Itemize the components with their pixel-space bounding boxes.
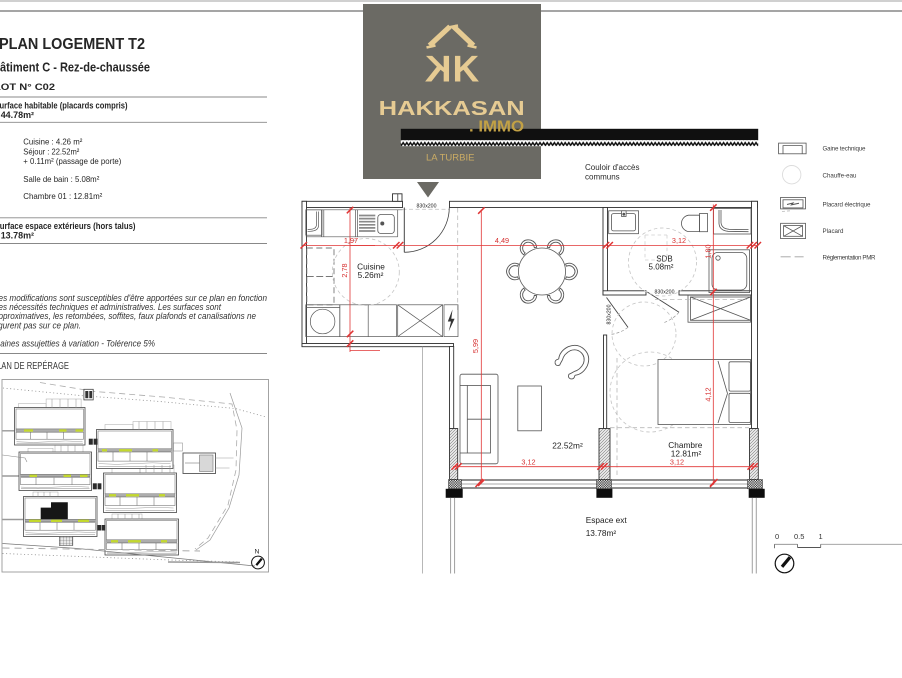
svg-text:Placard: Placard xyxy=(823,228,845,235)
svg-text:figurent pas sur ce plan.: figurent pas sur ce plan. xyxy=(0,320,81,330)
svg-text:830x200: 830x200 xyxy=(417,204,437,210)
svg-text:4,49: 4,49 xyxy=(495,236,509,245)
svg-text:1: 1 xyxy=(819,532,823,541)
svg-text:. IMMO: . IMMO xyxy=(469,119,524,136)
svg-text:Couloir d'accès: Couloir d'accès xyxy=(585,163,639,172)
svg-text:PLAN DE REPÉRAGE: PLAN DE REPÉRAGE xyxy=(0,359,69,372)
svg-text:PLAN LOGEMENT T2: PLAN LOGEMENT T2 xyxy=(0,36,145,53)
svg-text:Gaines assujetties à variation: Gaines assujetties à variation - Toléren… xyxy=(0,339,155,349)
svg-text:Gaine technique: Gaine technique xyxy=(823,146,867,153)
svg-text:LA TURBIE: LA TURBIE xyxy=(426,152,475,163)
svg-text:Cuisine : 4.26 m²: Cuisine : 4.26 m² xyxy=(23,137,82,147)
svg-text:Bâtiment C - Rez-de-chaussée: Bâtiment C - Rez-de-chaussée xyxy=(0,61,150,75)
svg-text:= 44.78m²: = 44.78m² xyxy=(0,110,34,120)
svg-text:3,12: 3,12 xyxy=(670,457,684,466)
svg-text:+ 0.11m² (passage de porte): + 0.11m² (passage de porte) xyxy=(23,156,121,166)
svg-text:13.78m²: 13.78m² xyxy=(586,528,617,538)
svg-text:Salle de bain : 5.08m²: Salle de bain : 5.08m² xyxy=(23,174,99,184)
svg-text:LOT N° C02: LOT N° C02 xyxy=(0,82,55,92)
svg-text:22.52m²: 22.52m² xyxy=(552,441,583,451)
svg-text:Chambre 01 : 12.81m²: Chambre 01 : 12.81m² xyxy=(23,191,102,201)
svg-text:2,78: 2,78 xyxy=(340,263,349,277)
svg-text:HAKKASAN: HAKKASAN xyxy=(379,97,525,120)
svg-text:Séjour : 22.52m²: Séjour : 22.52m² xyxy=(23,147,79,157)
svg-text:4,12: 4,12 xyxy=(703,387,712,401)
svg-text:3,12: 3,12 xyxy=(672,236,686,245)
svg-text:1,97: 1,97 xyxy=(344,236,358,245)
svg-text:830x200: 830x200 xyxy=(655,289,675,295)
svg-text:Surface habitable (placards co: Surface habitable (placards compris) xyxy=(0,100,128,110)
svg-text:5.26m²: 5.26m² xyxy=(358,270,384,280)
svg-text:N: N xyxy=(255,549,260,556)
svg-text:830x200: 830x200 xyxy=(607,304,613,324)
svg-text:1,80: 1,80 xyxy=(703,244,712,258)
svg-text:Espace ext: Espace ext xyxy=(586,515,628,525)
svg-text:K: K xyxy=(425,49,452,90)
svg-text:Placard électrique: Placard électrique xyxy=(823,202,872,209)
svg-text:5,99: 5,99 xyxy=(471,339,480,353)
svg-text:Chauffe-eau: Chauffe-eau xyxy=(823,173,858,180)
svg-text:0: 0 xyxy=(775,532,779,541)
svg-text:Surface espace extérieurs (ho: Surface espace extérieurs (hors talus) xyxy=(0,221,136,231)
svg-text:= 13.78m²: = 13.78m² xyxy=(0,231,34,241)
svg-text:K: K xyxy=(453,49,480,90)
svg-text:communs: communs xyxy=(585,173,620,182)
svg-text:Réglementation PMR: Réglementation PMR xyxy=(823,255,877,262)
svg-text:5.08m²: 5.08m² xyxy=(649,263,674,272)
svg-text:3,12: 3,12 xyxy=(521,457,535,466)
svg-text:0.5: 0.5 xyxy=(794,532,804,541)
